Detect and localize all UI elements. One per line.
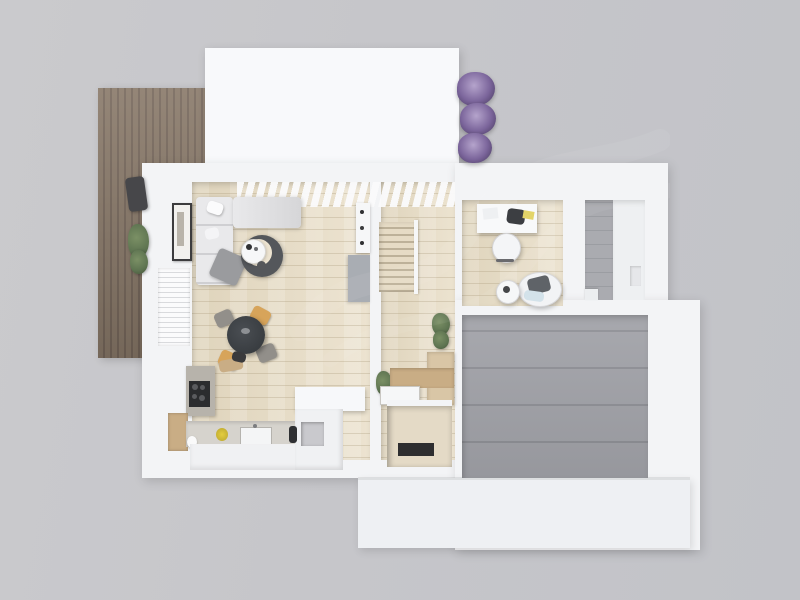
burner-3	[192, 394, 197, 399]
bathroom-tile-floor	[585, 200, 613, 300]
bathroom-wall-niche	[630, 266, 641, 286]
lavender-bush-2	[460, 103, 496, 135]
dining-table	[227, 316, 265, 354]
burner-4	[199, 395, 205, 401]
yellow-flowers	[216, 428, 228, 441]
sink-faucet	[253, 424, 257, 428]
desk-chair-base	[496, 259, 514, 262]
stair-rail	[414, 220, 418, 294]
island-open-niche	[301, 422, 324, 446]
vanity-counter	[390, 368, 454, 388]
base-cabinets	[190, 444, 300, 470]
staircase	[379, 222, 415, 292]
side-stool	[257, 261, 266, 270]
picture-frame-art	[177, 212, 184, 246]
utility-niche-wall	[387, 400, 452, 406]
low-wood-cabinet	[168, 413, 188, 451]
concrete-panel	[348, 255, 370, 302]
utility-appliance	[398, 443, 434, 456]
dark-bottle	[289, 426, 297, 443]
lower-terrace	[358, 478, 690, 548]
utility-niche	[387, 404, 452, 467]
shelf-bottle-2	[360, 226, 364, 230]
hall-plant-lower	[433, 331, 449, 349]
deck-plant-lower	[130, 250, 148, 274]
island-countertop	[295, 387, 365, 411]
shelf-bottle-3	[360, 241, 364, 245]
flat-roof	[205, 48, 459, 166]
kitchen-sink	[240, 427, 272, 445]
floor-plan-render	[0, 0, 800, 600]
desk-papers	[482, 207, 498, 220]
yellow-notepad	[522, 210, 534, 220]
coffee-table-decor-2	[254, 247, 258, 251]
sofa-chaise	[233, 197, 301, 228]
coffee-table-decor	[246, 244, 252, 250]
lavender-bush-1	[457, 72, 495, 106]
bathroom-step	[585, 289, 598, 300]
burner-2	[200, 385, 205, 390]
burner	[192, 384, 198, 390]
garage-floor	[462, 315, 648, 478]
window-blinds	[158, 268, 190, 346]
lavender-bush-3	[458, 133, 492, 163]
side-table-decor	[503, 286, 510, 293]
dining-table-setting	[241, 328, 250, 334]
shelf-bottle	[360, 210, 364, 214]
